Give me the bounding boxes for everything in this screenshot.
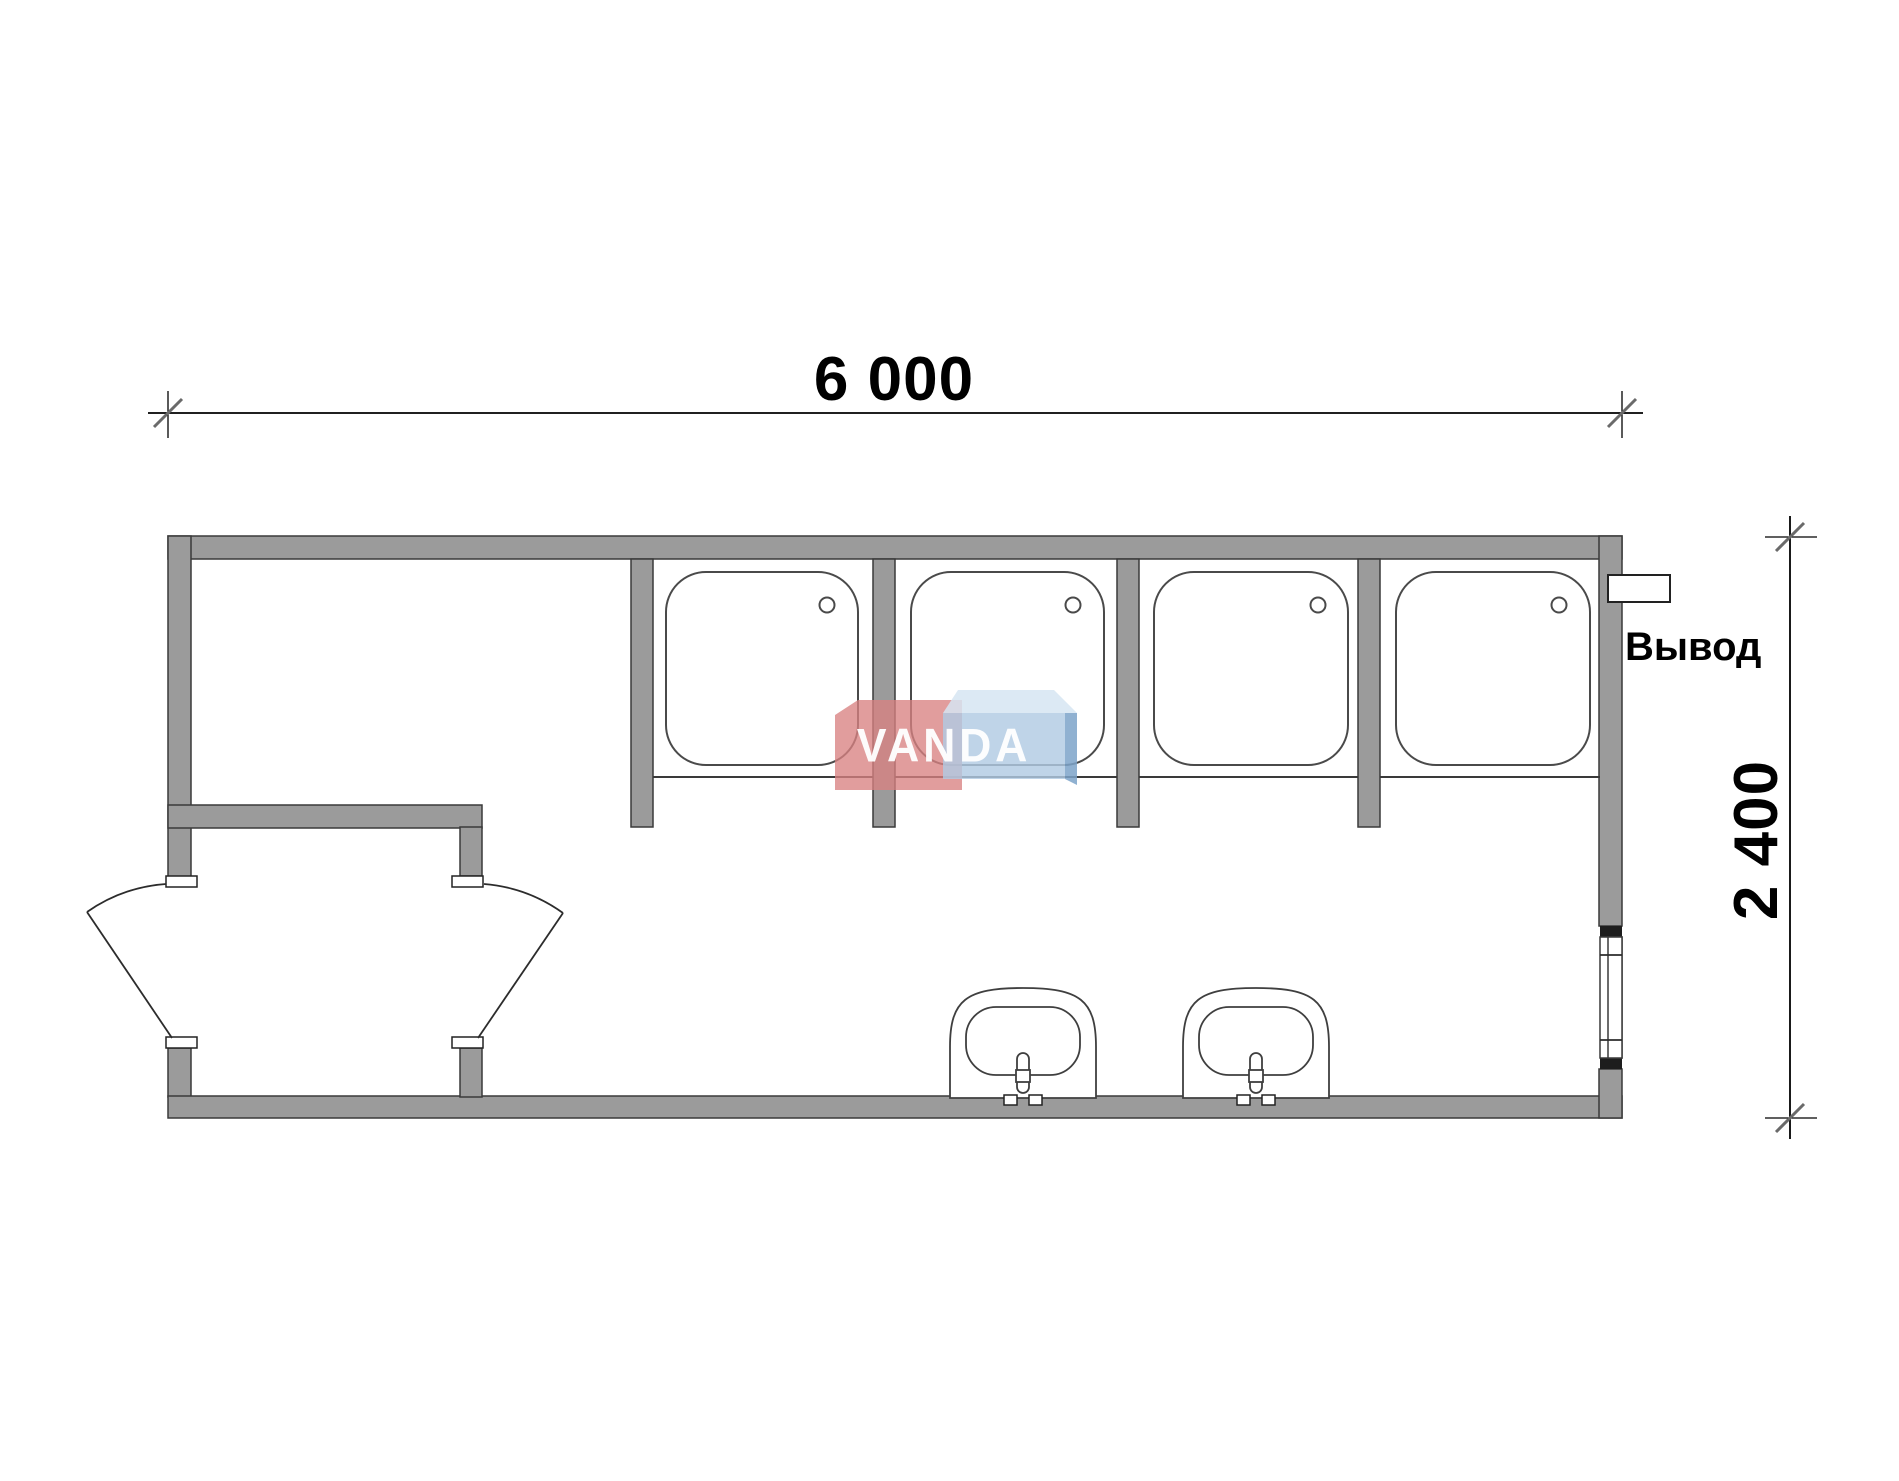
sink-mount bbox=[1029, 1095, 1042, 1105]
sink-mount bbox=[1262, 1095, 1275, 1105]
vestibule-wall-stub-upper bbox=[460, 827, 482, 876]
window-cap-top bbox=[1600, 926, 1622, 937]
watermark-logo: VANDA bbox=[830, 686, 1080, 796]
door-leaf-left bbox=[87, 912, 172, 1038]
sink-mount bbox=[1237, 1095, 1250, 1105]
door-jamb-upper-left bbox=[166, 876, 197, 887]
sink-mount bbox=[1004, 1095, 1017, 1105]
outlet-label: Вывод bbox=[1625, 627, 1761, 667]
door-leaf-right bbox=[478, 913, 563, 1038]
drain-icon bbox=[1311, 598, 1326, 613]
window bbox=[1600, 926, 1622, 1069]
door-jamb-upper-right bbox=[452, 876, 483, 887]
partition-4 bbox=[1358, 559, 1380, 827]
faucet-base bbox=[1016, 1070, 1030, 1082]
faucet-base bbox=[1249, 1070, 1263, 1082]
drain-icon bbox=[1552, 598, 1567, 613]
partition-3 bbox=[1117, 559, 1139, 827]
door-jamb-lower-right bbox=[452, 1037, 483, 1048]
dimension-height-label: 2 400 bbox=[1726, 760, 1788, 920]
partition-1 bbox=[631, 559, 653, 827]
door-swing-arc-right bbox=[484, 884, 563, 913]
vestibule-walls bbox=[168, 805, 482, 1097]
floor-plan-canvas: 6 000 2 400 Вывод VANDA bbox=[0, 0, 1899, 1481]
wall-right-lower bbox=[1599, 1069, 1622, 1118]
window-cap-bottom bbox=[1600, 1058, 1622, 1069]
watermark-brand-text: VANDA bbox=[857, 722, 1031, 769]
drain-icon bbox=[820, 598, 835, 613]
wall-left-lower bbox=[168, 1048, 191, 1097]
vestibule-wall-top bbox=[168, 805, 482, 828]
sink-1 bbox=[950, 988, 1096, 1105]
dimension-width-label: 6 000 bbox=[814, 349, 974, 411]
entrance-doors bbox=[87, 876, 563, 1048]
drain-icon bbox=[1066, 598, 1081, 613]
wall-bottom bbox=[168, 1096, 1622, 1118]
outlet-stub bbox=[1608, 575, 1670, 602]
door-swing-arc-left bbox=[87, 884, 166, 912]
door-jamb-lower-left bbox=[166, 1037, 197, 1048]
sink-2 bbox=[1183, 988, 1329, 1105]
vestibule-wall-stub-lower bbox=[460, 1048, 482, 1097]
wall-top bbox=[168, 536, 1622, 559]
